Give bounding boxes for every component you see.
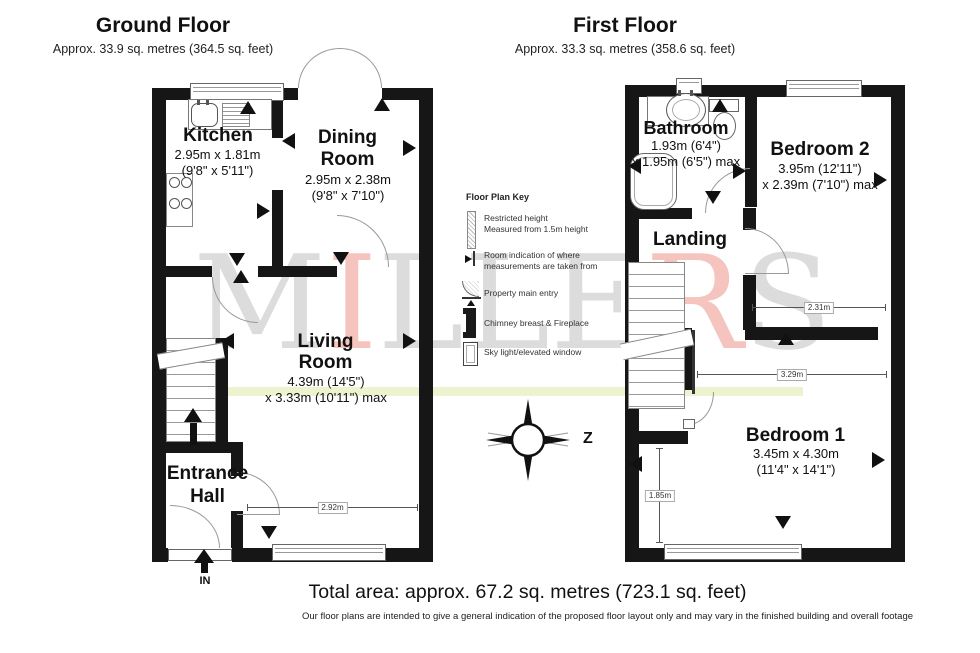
entry-arrow-stem: [201, 562, 208, 573]
entry-arrow-icon: [194, 549, 214, 563]
tap-icon: [690, 90, 693, 96]
living-room-label: Living: [273, 332, 378, 352]
key-item-label: Property main entry: [484, 288, 614, 299]
first-floor-title: First Floor: [525, 14, 725, 38]
tap-icon: [206, 100, 209, 105]
dimension-line: 2.31m: [752, 301, 886, 315]
key-item-label: Room indication of where: [484, 250, 629, 261]
wall: [625, 431, 688, 444]
bedroom1-dimensions: (11'4" x 14'1"): [740, 463, 852, 477]
measurement-marker: [629, 456, 642, 472]
wall: [152, 548, 168, 562]
compass-icon: [480, 397, 576, 483]
key-item-label: Restricted height: [484, 213, 624, 224]
bedroom1-window: [664, 544, 802, 560]
dimension-label: 2.31m: [804, 302, 834, 314]
measurement-marker: [403, 140, 416, 156]
wall: [272, 190, 283, 277]
measurement-marker: [257, 203, 270, 219]
wall: [258, 266, 337, 277]
stairs-up-arrow: [190, 423, 197, 445]
door-leaf: [745, 273, 789, 274]
chimney-fireplace-icon: [463, 332, 466, 338]
dimension-line: 3.29m: [697, 368, 887, 382]
measurement-marker: [775, 516, 791, 529]
bathroom-dimensions: x 1.95m (6'5") max: [618, 155, 754, 169]
bedroom1-label: Bedroom 1: [743, 426, 848, 446]
chimney-fireplace-icon: [463, 308, 466, 314]
property-entry-icon: [462, 297, 481, 299]
measurement-marker: [233, 270, 249, 283]
key-item-label: Chimney breast & Fireplace: [484, 318, 629, 329]
measurement-marker: [872, 452, 885, 468]
chimney-fireplace-icon: [466, 308, 476, 338]
measurement-marker: [333, 252, 349, 265]
key-item-label: Sky light/elevated window: [484, 347, 629, 358]
disclaimer-text: Our floor plans are intended to give a g…: [235, 611, 980, 622]
kitchen-label: Kitchen: [158, 126, 278, 146]
french-door-arc: [340, 48, 382, 88]
key-item-label: Measured from 1.5m height: [484, 224, 624, 235]
measurement-marker: [261, 526, 277, 539]
dining-room-dimensions: (9'8" x 7'10"): [288, 189, 408, 203]
bedroom2-dimensions: 3.95m (12'11"): [758, 162, 882, 176]
entrance-door-arc: [170, 505, 220, 548]
floor-plan-page: M I L L E R S Ground Floor Approx. 33.9 …: [0, 0, 980, 653]
burner-icon: [169, 177, 180, 188]
measurement-point-icon: [465, 255, 472, 263]
measurement-marker: [374, 98, 390, 111]
burner-icon: [181, 198, 192, 209]
kitchen-sink: [191, 103, 218, 127]
french-door-arc: [298, 48, 340, 88]
bedroom2-dimensions: x 2.39m (7'10") max: [745, 178, 895, 192]
measurement-point-icon: [473, 251, 475, 266]
dimension-label: 3.29m: [777, 369, 807, 381]
restricted-height-icon: [467, 211, 476, 249]
entrance-hall-label: Entrance: [150, 464, 265, 484]
measurement-marker: [240, 101, 256, 114]
living-room-window: [272, 544, 386, 561]
dimension-line: 2.92m: [247, 501, 418, 515]
tap-icon: [678, 90, 681, 96]
kitchen-dimensions: 2.95m x 1.81m: [150, 148, 285, 162]
compass-north-label: Z: [583, 430, 593, 448]
dining-room-dimensions: 2.95m x 2.38m: [288, 173, 408, 187]
kitchen-dimensions: (9'8" x 5'11"): [150, 164, 285, 178]
bedroom1-dimensions: 3.45m x 4.30m: [740, 447, 852, 461]
measurement-marker: [705, 191, 721, 204]
bedroom2-window: [786, 80, 862, 97]
bathroom-label: Bathroom: [626, 119, 746, 138]
key-item-label: measurements are taken from: [484, 261, 629, 272]
wall: [891, 85, 905, 562]
dimension-label: 2.92m: [317, 502, 347, 514]
landing-label: Landing: [645, 230, 735, 250]
measurement-marker: [282, 133, 295, 149]
burner-icon: [181, 177, 192, 188]
measurement-marker: [712, 99, 728, 112]
living-room-dimensions: x 3.33m (10'11") max: [250, 391, 402, 405]
in-label: IN: [183, 575, 227, 587]
ground-floor-title: Ground Floor: [63, 14, 263, 38]
living-room-dimensions: 4.39m (14'5"): [262, 375, 390, 389]
bedroom2-label: Bedroom 2: [758, 140, 882, 160]
wall: [745, 327, 878, 340]
bathroom-dimensions: 1.93m (6'4"): [626, 139, 746, 153]
measurement-marker: [221, 333, 234, 349]
measurement-marker: [403, 333, 416, 349]
ground-floor-subtitle: Approx. 33.9 sq. metres (364.5 sq. feet): [38, 42, 288, 56]
skylight-window-icon: [463, 342, 478, 366]
wall: [419, 88, 433, 562]
measurement-marker: [778, 332, 794, 345]
first-floor-subtitle: Approx. 33.3 sq. metres (358.6 sq. feet): [500, 42, 750, 56]
dimension-line: 1.85m: [653, 448, 667, 543]
wall: [166, 266, 212, 277]
wall: [231, 511, 243, 548]
property-entry-icon: [467, 300, 475, 306]
living-room-label: Room: [273, 353, 378, 373]
dimension-label: 1.85m: [645, 490, 675, 502]
dining-room-label: Room: [295, 150, 400, 170]
total-area-text: Total area: approx. 67.2 sq. metres (723…: [240, 581, 815, 604]
tap-icon: [197, 100, 200, 105]
key-title: Floor Plan Key: [466, 192, 586, 202]
dining-room-label: Dining: [295, 128, 400, 148]
burner-icon: [169, 198, 180, 209]
stairs-up-arrow-head: [184, 408, 202, 422]
measurement-marker: [229, 253, 245, 266]
door-threshold: [683, 419, 695, 429]
